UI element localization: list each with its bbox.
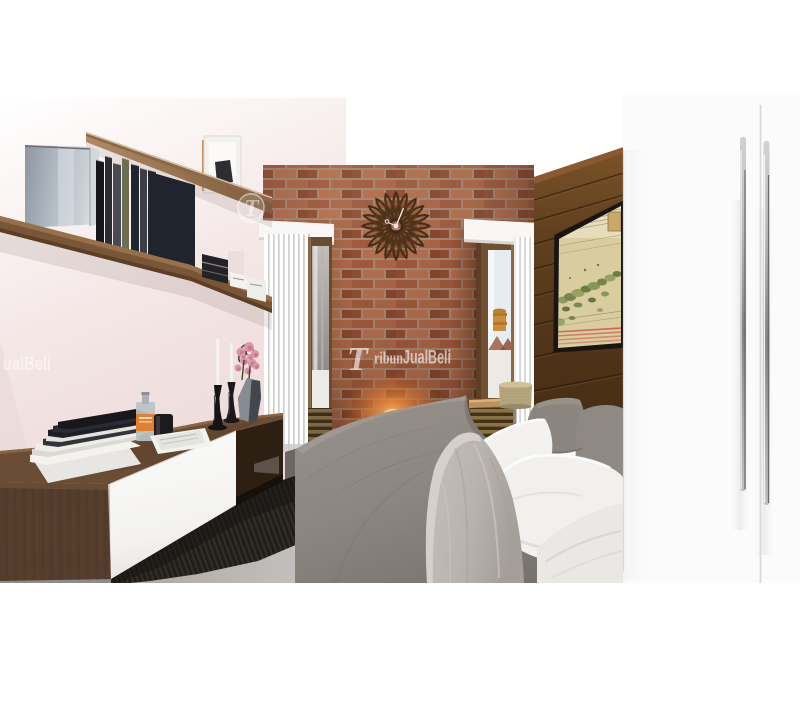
- svg-text:ualBeli: ualBeli: [3, 354, 51, 375]
- svg-text:JualBeli: JualBeli: [403, 348, 451, 369]
- svg-text:T: T: [244, 196, 260, 222]
- svg-text:T: T: [347, 341, 369, 378]
- svg-text:ribun: ribun: [374, 349, 403, 368]
